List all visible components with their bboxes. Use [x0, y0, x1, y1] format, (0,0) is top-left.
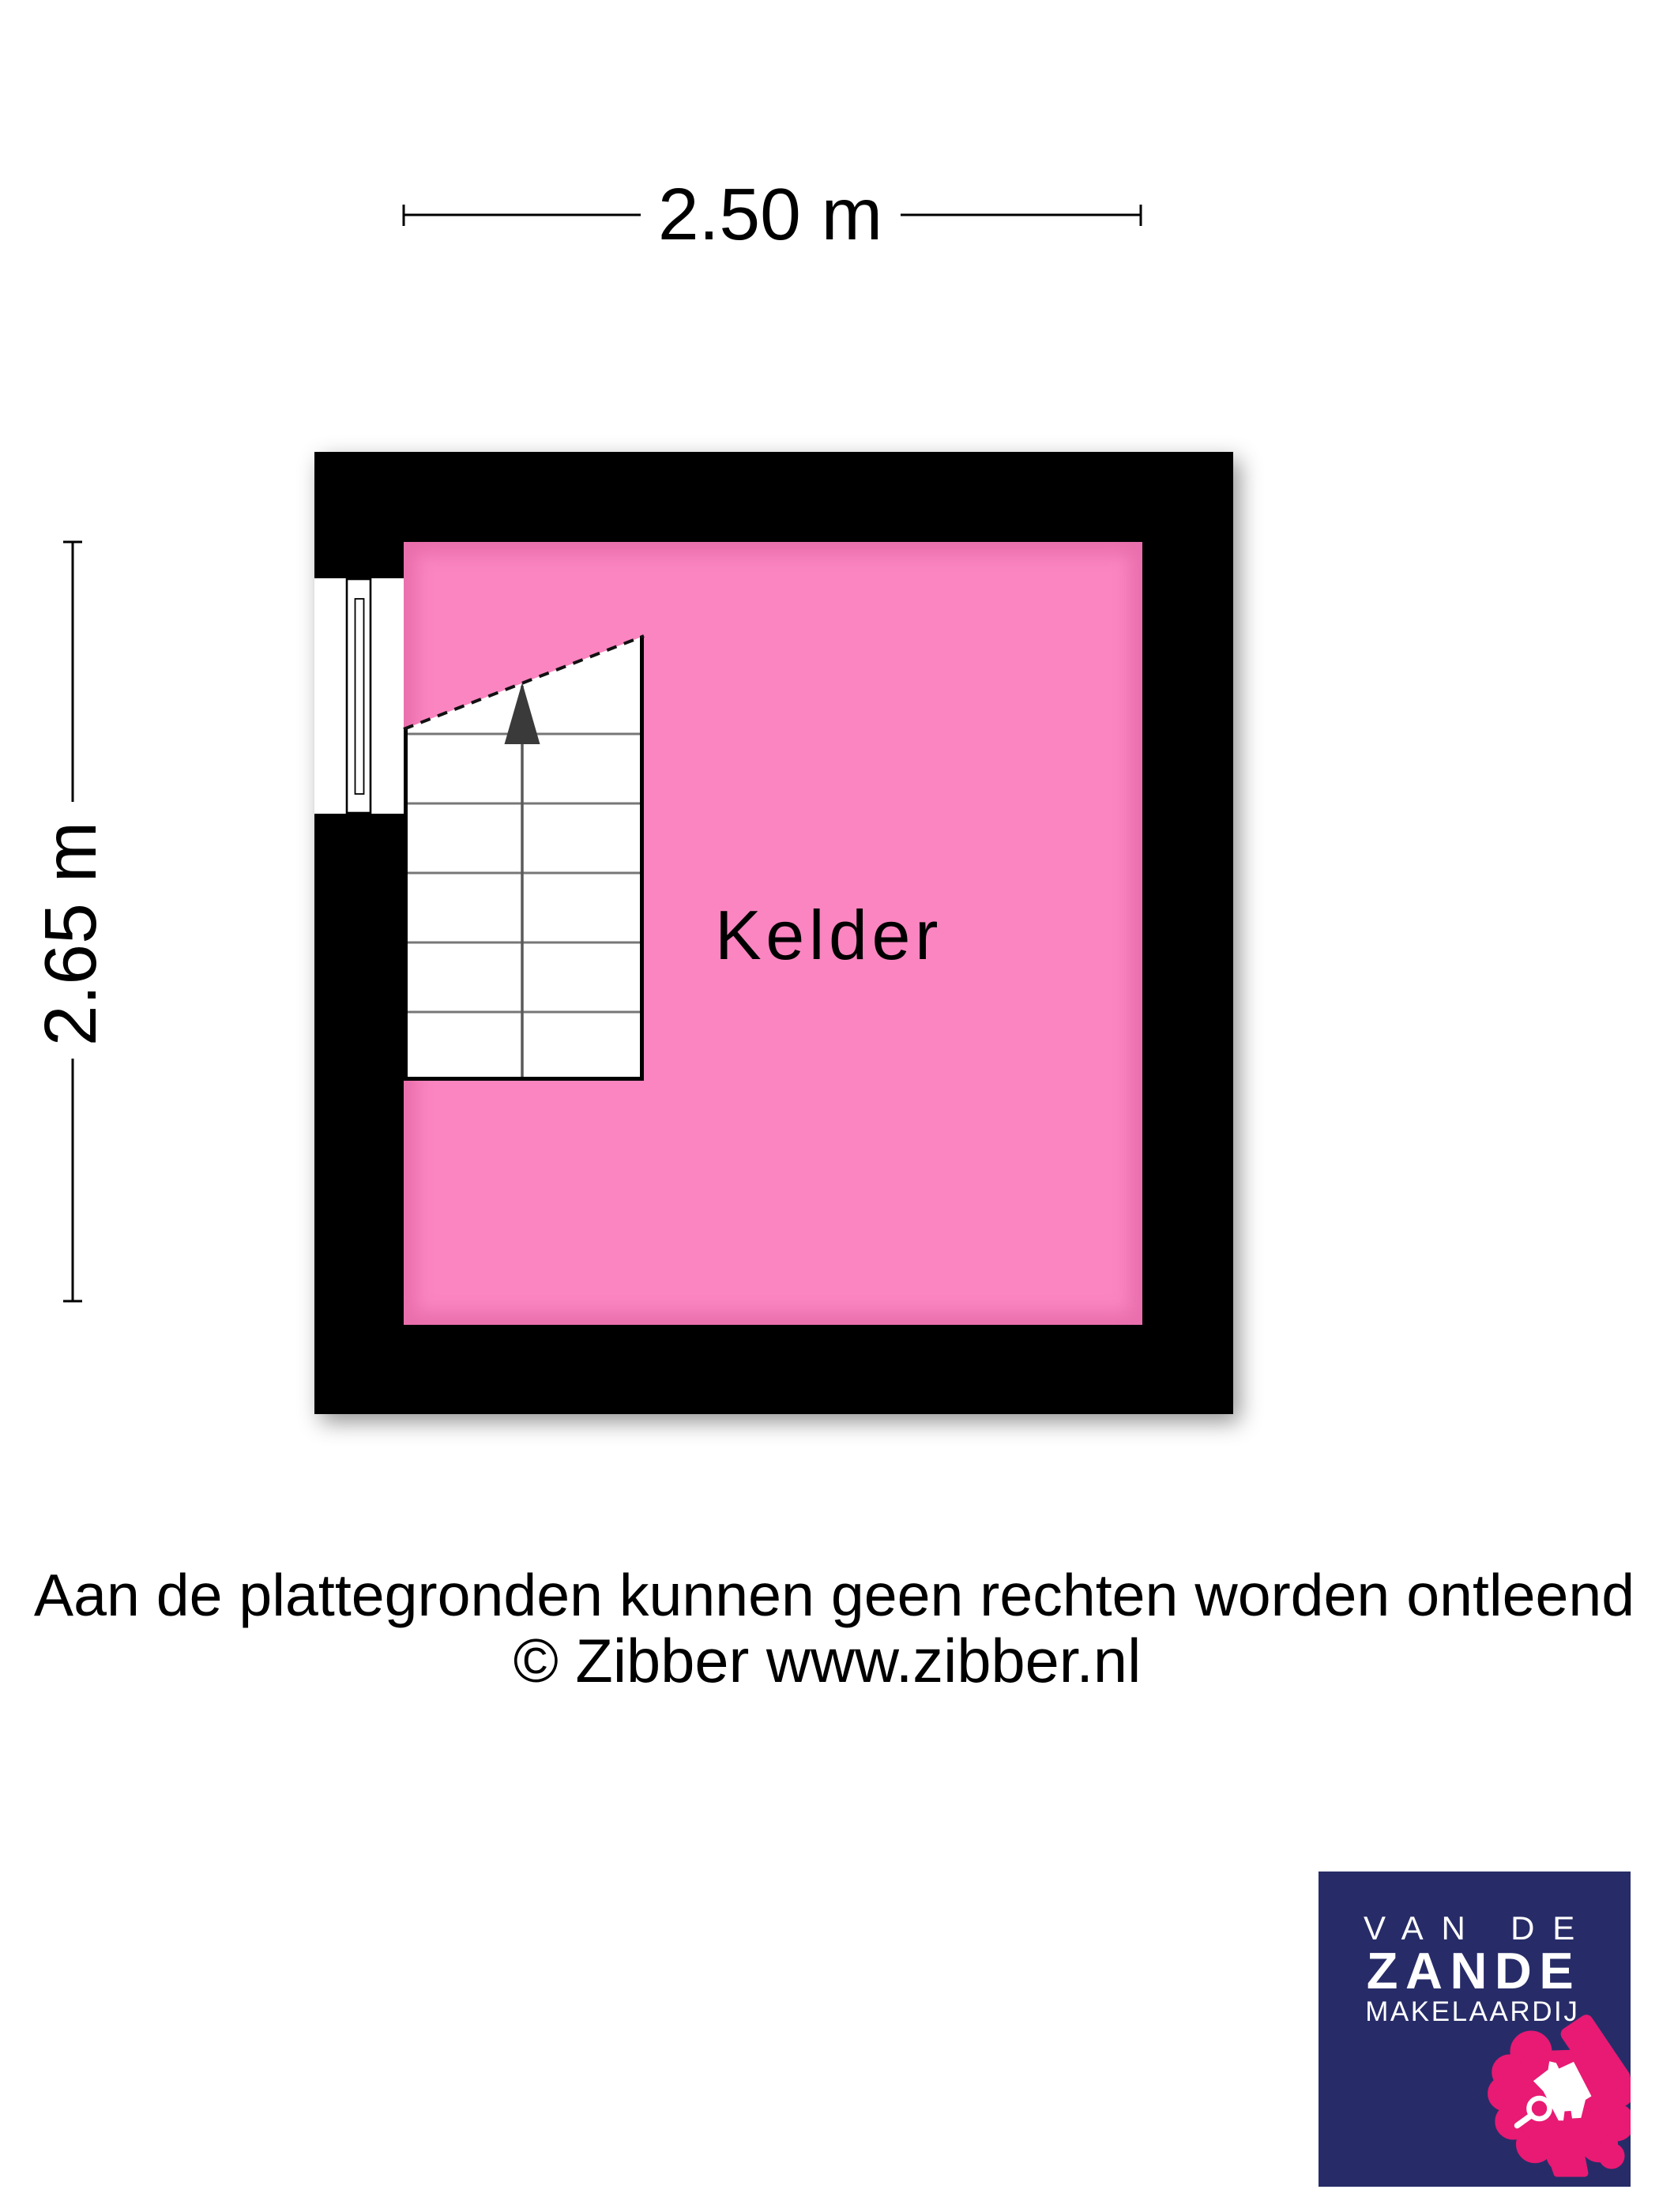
svg-text:MAKELAARDIJ: MAKELAARDIJ	[1365, 1996, 1579, 2027]
svg-text:2.65 m: 2.65 m	[29, 822, 111, 1046]
svg-text:© Zibber www.zibber.nl: © Zibber www.zibber.nl	[513, 1627, 1142, 1695]
svg-text:VAN DE: VAN DE	[1364, 1909, 1593, 1947]
svg-text:Kelder: Kelder	[715, 896, 942, 974]
svg-text:Aan de plattegronden kunnen ge: Aan de plattegronden kunnen geen rechten…	[34, 1562, 1635, 1628]
svg-text:ZANDE: ZANDE	[1367, 1942, 1581, 1999]
svg-text:2.50 m: 2.50 m	[658, 173, 882, 255]
